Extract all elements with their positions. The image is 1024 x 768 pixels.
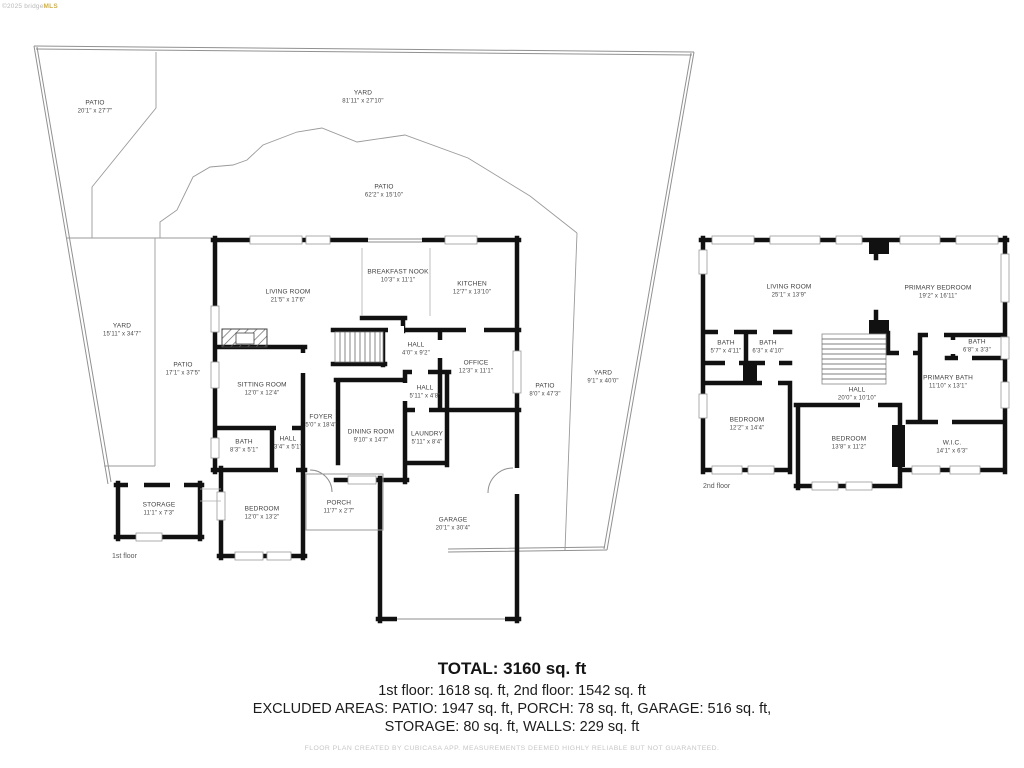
- label-yard-left: YARD15'11" x 34'7": [103, 321, 141, 338]
- label-hall-right: HALL5'11" x 4'8": [410, 383, 441, 400]
- label-patio-left: PATIO17'1" x 37'5": [166, 360, 201, 377]
- label-storage: STORAGE11'1" x 7'3": [143, 500, 176, 517]
- label-living-room-2f: LIVING ROOM25'1" x 13'9": [767, 282, 812, 299]
- cubicasa-disclaimer: FLOOR PLAN CREATED BY CUBICASA APP. MEAS…: [0, 745, 1024, 752]
- label-dining-room: DINING ROOM9'10" x 14'7": [348, 427, 394, 444]
- summary-floors: 1st floor: 1618 sq. ft, 2nd floor: 1542 …: [0, 682, 1024, 700]
- label-sitting-room: SITTING ROOM12'0" x 12'4": [237, 380, 286, 397]
- floor-plan-page: ©2025 bridgeMLS: [0, 0, 1024, 768]
- summary-excluded-1: EXCLUDED AREAS: PATIO: 1947 sq. ft, PORC…: [0, 700, 1024, 718]
- yard-patio-separators: [66, 52, 577, 550]
- label-patio-right: PATIO8'0" x 47'3": [529, 381, 560, 398]
- label-patio-topleft: PATIO20'1" x 27'7": [78, 98, 113, 115]
- floor-plan-drawing: [0, 0, 1024, 768]
- label-primary-bath: PRIMARY BATH11'10" x 13'1": [923, 373, 973, 390]
- label-yard-right: YARD9'1" x 40'0": [587, 368, 618, 385]
- summary-excluded-2: STORAGE: 80 sq. ft, WALLS: 229 sq. ft: [0, 718, 1024, 736]
- summary-total: TOTAL: 3160 sq. ft: [0, 659, 1024, 679]
- label-hall-small: HALL3'4" x 5'1": [274, 434, 302, 451]
- label-bath-2f-b: BATH6'3" x 4'10": [752, 338, 783, 355]
- label-bath-2f-a: BATH5'7" x 4'11": [711, 338, 742, 355]
- fireplace-icon: [222, 329, 267, 347]
- label-breakfast-nook: BREAKFAST NOOK10'3" x 11'1": [367, 267, 428, 284]
- label-kitchen: KITCHEN12'7" x 13'10": [453, 279, 491, 296]
- staircase-2f-icon: [822, 334, 886, 384]
- label-hall-2f: HALL20'0" x 10'10": [838, 385, 876, 402]
- label-yard-top: YARD81'11" x 27'10": [342, 88, 383, 105]
- area-summary: TOTAL: 3160 sq. ft 1st floor: 1618 sq. f…: [0, 659, 1024, 752]
- label-hall-center: HALL4'0" x 9'2": [402, 340, 430, 357]
- label-foyer: FOYER5'0" x 18'4": [305, 412, 336, 429]
- label-patio-center: PATIO62'2" x 15'10": [365, 182, 403, 199]
- caption-2nd-floor: 2nd floor: [703, 483, 730, 490]
- label-porch: PORCH11'7" x 2'7": [324, 498, 355, 515]
- label-primary-bedroom: PRIMARY BEDROOM19'2" x 16'11": [904, 283, 971, 300]
- label-office: OFFICE12'3" x 11'1": [459, 358, 493, 375]
- label-bedroom-2f-a: BEDROOM12'2" x 14'4": [730, 415, 765, 432]
- staircase-icon: [335, 332, 383, 362]
- caption-1st-floor: 1st floor: [112, 553, 137, 560]
- label-bath-2f-c: BATH6'8" x 3'3": [963, 337, 991, 354]
- label-laundry: LAUNDRY5'11" x 8'4": [411, 429, 443, 446]
- label-bedroom-1f: BEDROOM12'0" x 13'2": [245, 504, 280, 521]
- floor1-open-boundaries: [200, 248, 430, 501]
- label-wic: W.I.C.14'1" x 6'3": [936, 438, 967, 455]
- label-bath-1f: BATH8'3" x 5'1": [230, 437, 258, 454]
- label-garage: GARAGE20'1" x 30'4": [436, 515, 471, 532]
- label-living-room-1f: LIVING ROOM21'5" x 17'6": [266, 287, 311, 304]
- label-bedroom-2f-b: BEDROOM13'8" x 11'2": [832, 434, 867, 451]
